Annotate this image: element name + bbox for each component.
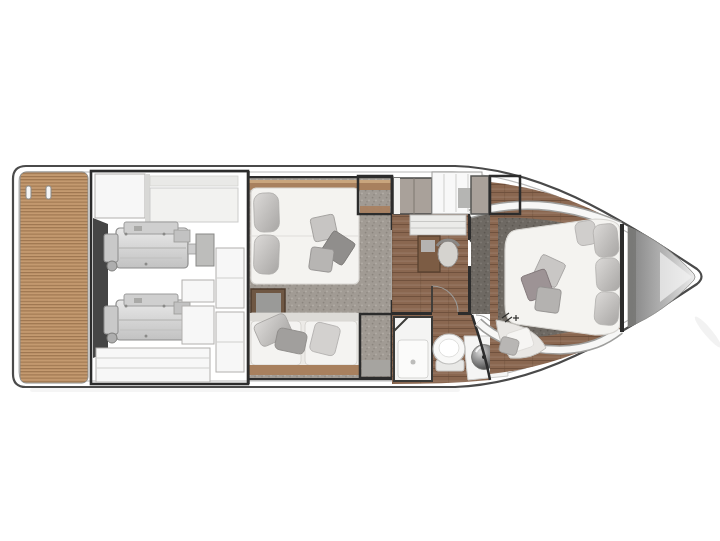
desk-chair [437,240,459,267]
guest-double-berth [251,188,359,284]
guest-sofa [249,312,359,367]
pillow [592,223,619,258]
cabinet [471,176,489,214]
equipment-panel [150,188,238,222]
teak-decking [20,172,88,383]
yacht-floor-plan [0,0,720,541]
guest-cabin [247,171,393,384]
port-engine [104,222,200,271]
pillow [253,193,279,233]
hull-shadow [30,388,460,392]
wood-trim-highlight [249,180,392,183]
pillow [594,291,621,326]
battery-box [182,280,214,302]
scatter-cushion [534,286,561,313]
stowage-locker [96,348,210,382]
steps [410,215,466,235]
shelf [150,176,238,186]
master-cabin [470,176,621,374]
shower-drain [411,360,416,365]
shower-cubicle [394,317,432,381]
battery-box [182,306,214,344]
pillow [595,257,621,291]
equipment-box [196,234,214,266]
desk-item [421,240,435,252]
pillow [253,235,279,275]
floor-plan-canvas [0,0,720,541]
toilet [433,334,465,371]
swim-platform [20,172,88,383]
collision-bulkhead [620,224,624,332]
divider [145,174,150,222]
wood-trim [249,365,359,375]
equipment-cabinet [95,174,145,218]
cleat [26,186,31,199]
bow-locker [628,227,695,327]
master-island-berth [505,219,621,335]
bow-shadow [692,314,720,350]
cleat [46,186,51,199]
scatter-cushion [308,247,334,273]
